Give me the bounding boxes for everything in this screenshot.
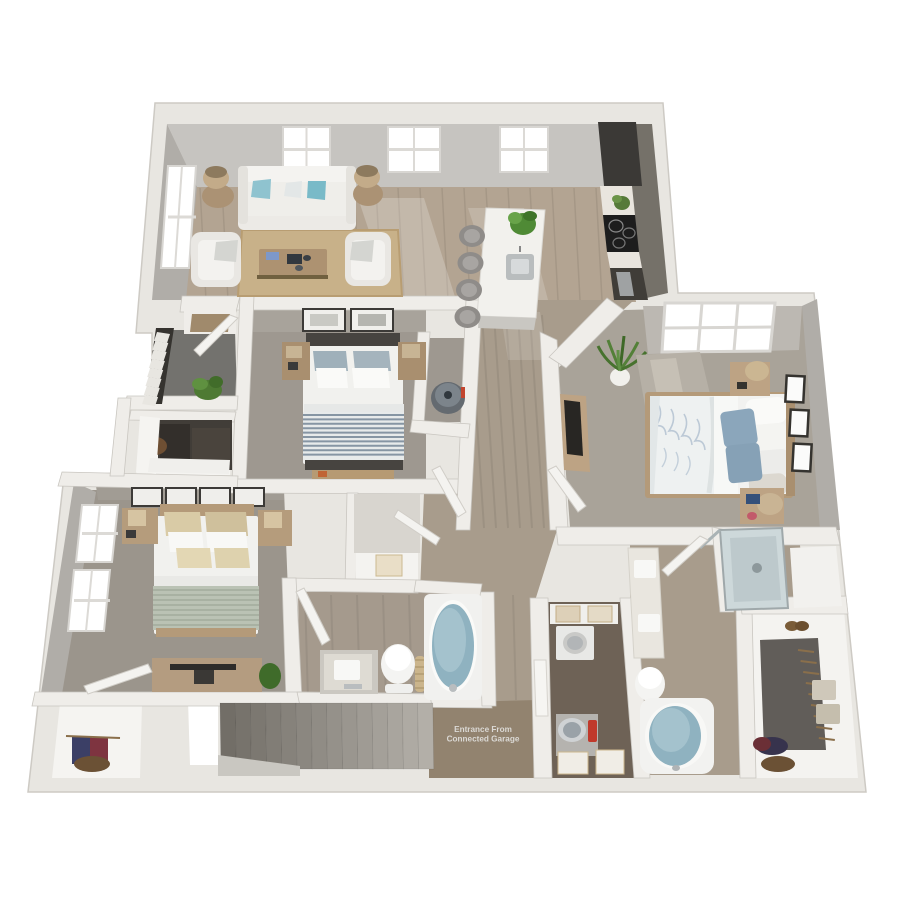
svg-text:Connected Garage: Connected Garage — [447, 735, 520, 744]
svg-text:Entrance From: Entrance From — [454, 725, 512, 734]
